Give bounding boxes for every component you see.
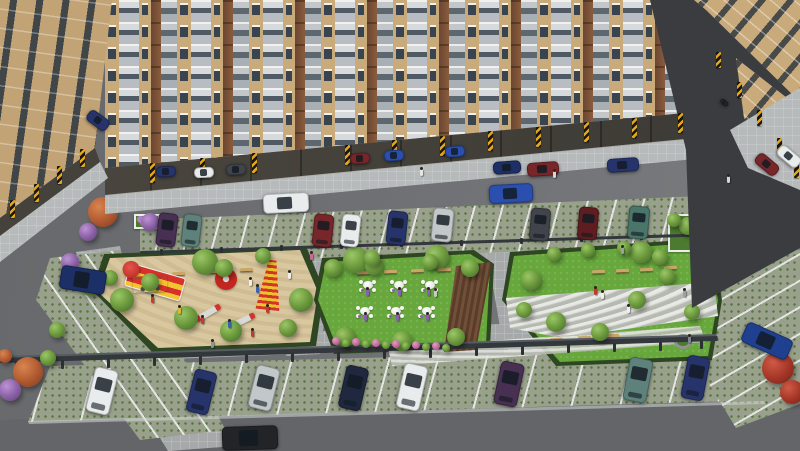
person <box>178 307 181 314</box>
person-head <box>427 287 430 290</box>
person <box>364 314 367 321</box>
person-head <box>434 288 437 291</box>
person-head <box>249 277 252 280</box>
person-head <box>594 286 597 289</box>
person <box>427 289 430 296</box>
person <box>398 289 401 296</box>
person-head <box>396 312 399 315</box>
person-head <box>266 304 269 307</box>
person <box>594 288 597 295</box>
person-head <box>228 319 231 322</box>
person <box>553 171 556 178</box>
person-head <box>683 288 686 291</box>
person-head <box>256 284 259 287</box>
person <box>683 290 686 297</box>
person-head <box>288 270 291 273</box>
person-head <box>688 334 691 337</box>
person-head <box>151 294 154 297</box>
person <box>288 272 291 279</box>
person-head <box>627 304 630 307</box>
person-head <box>426 312 429 315</box>
person-head <box>727 174 730 177</box>
person <box>251 330 254 337</box>
person <box>201 317 204 324</box>
person <box>366 289 369 296</box>
person-head <box>364 312 367 315</box>
person <box>627 306 630 313</box>
person <box>228 321 231 328</box>
person <box>434 290 437 297</box>
person-head <box>178 305 181 308</box>
person-head <box>398 287 401 290</box>
person-head <box>420 167 423 170</box>
person-head <box>366 287 369 290</box>
person <box>256 286 259 293</box>
person-head <box>310 251 313 254</box>
person <box>310 253 313 260</box>
person-head <box>201 315 204 318</box>
person <box>396 314 399 321</box>
person <box>211 341 214 348</box>
person <box>601 292 604 299</box>
person <box>621 247 624 254</box>
person <box>420 169 423 176</box>
person <box>249 279 252 286</box>
person <box>727 176 730 183</box>
person <box>266 306 269 313</box>
person <box>426 314 429 321</box>
person-head <box>621 245 624 248</box>
person-head <box>553 169 556 172</box>
person-head <box>251 328 254 331</box>
person <box>688 336 691 343</box>
people-layer <box>0 0 800 451</box>
person-head <box>601 290 604 293</box>
aerial-render-apartment-complex <box>0 0 800 451</box>
person <box>151 296 154 303</box>
person-head <box>211 339 214 342</box>
